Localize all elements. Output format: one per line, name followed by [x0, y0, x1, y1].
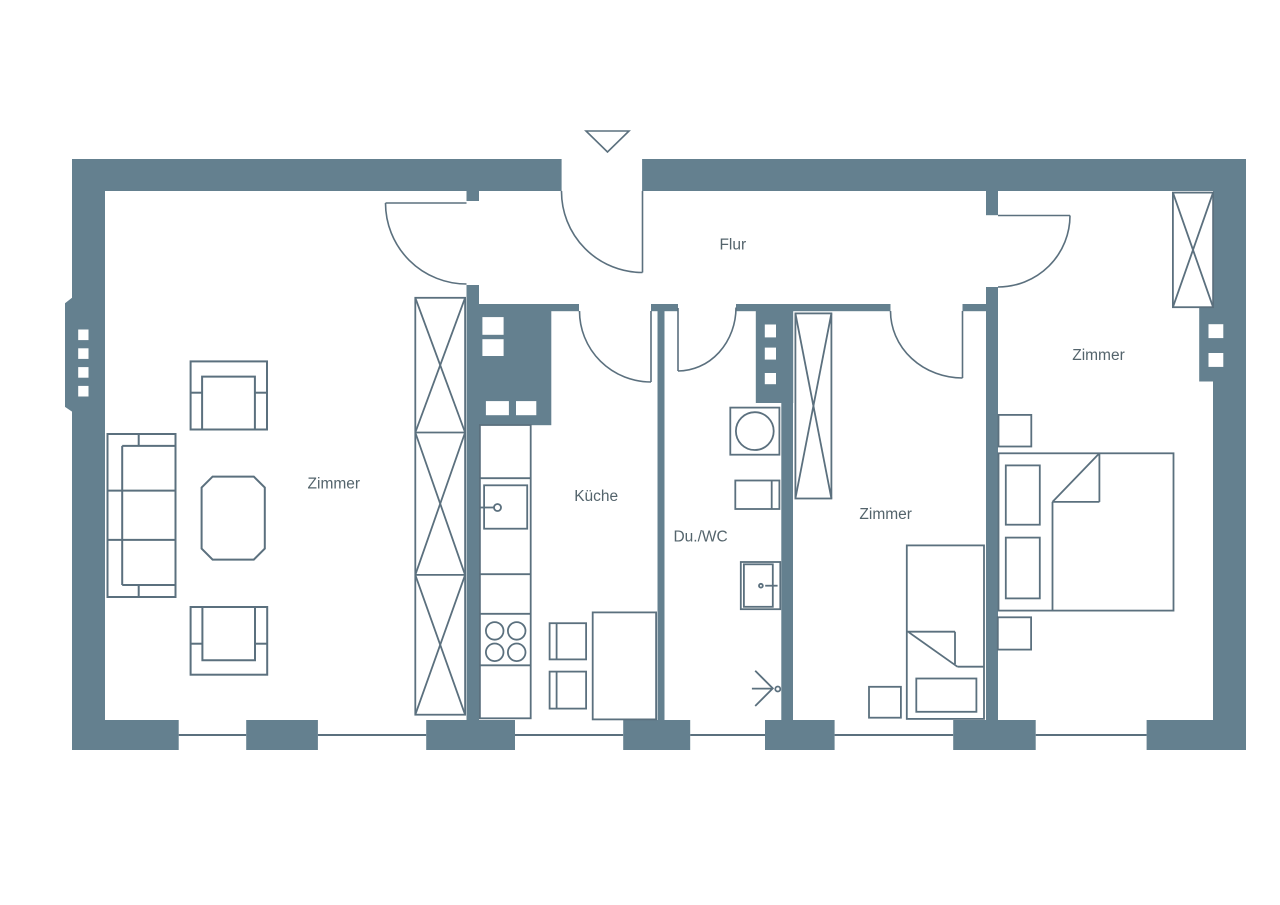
svg-text:Zimmer: Zimmer	[859, 506, 912, 523]
svg-text:Zimmer: Zimmer	[1072, 347, 1125, 364]
svg-text:Zimmer: Zimmer	[308, 476, 361, 493]
svg-text:Küche: Küche	[574, 488, 618, 505]
svg-text:Du./WC: Du./WC	[673, 529, 727, 546]
svg-text:Flur: Flur	[719, 237, 746, 254]
